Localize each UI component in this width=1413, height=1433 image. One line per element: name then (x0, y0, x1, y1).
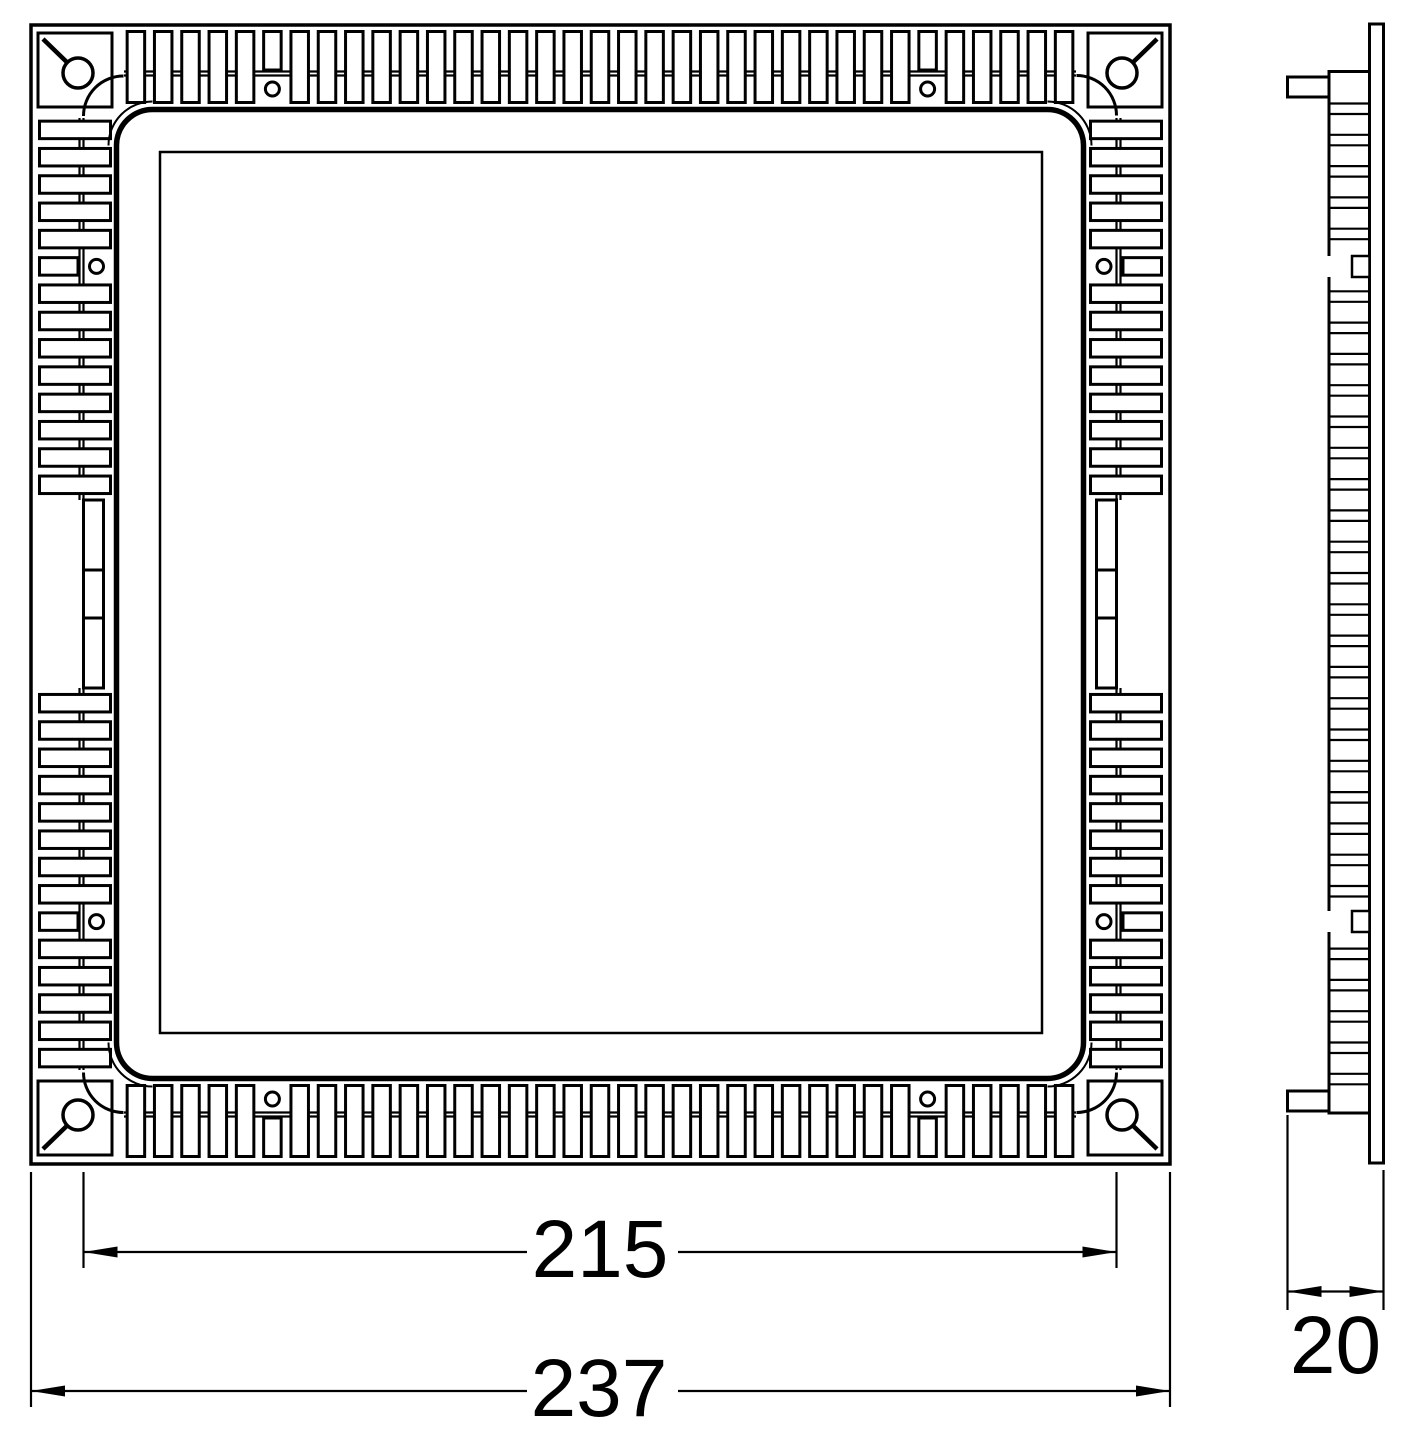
fin (1091, 340, 1162, 358)
fin (40, 749, 111, 767)
fin (673, 1086, 691, 1157)
fin (1091, 1022, 1162, 1040)
fin (40, 340, 111, 358)
fin (40, 858, 111, 876)
fin (837, 1086, 855, 1157)
fin (400, 1086, 418, 1157)
notch-clear (1326, 256, 1353, 277)
fin (564, 32, 582, 103)
fin (509, 1086, 526, 1157)
arrowhead (1350, 1286, 1384, 1297)
fin (755, 1086, 773, 1157)
fin (127, 1086, 144, 1157)
fin (482, 1086, 500, 1157)
fin (619, 1086, 637, 1157)
fin (700, 32, 718, 103)
fin (182, 1086, 200, 1157)
dimension-215: 215 (84, 1172, 1117, 1295)
arrowhead (84, 1247, 118, 1258)
fin (591, 32, 609, 103)
fin (946, 32, 964, 103)
edge-clip (84, 500, 104, 688)
dimension-215-label: 215 (532, 1204, 669, 1295)
side-view (1288, 24, 1384, 1163)
fin (591, 1086, 609, 1157)
fin (40, 476, 111, 494)
fin (1091, 176, 1162, 194)
fin (427, 32, 445, 103)
fin (1091, 121, 1162, 138)
fin (40, 449, 111, 467)
fin (864, 32, 882, 103)
fin (1091, 312, 1162, 330)
fin (1091, 776, 1162, 794)
fin (346, 32, 364, 103)
pivot-circle (63, 1100, 93, 1130)
light-aperture-square (160, 152, 1042, 1033)
screw-hole (921, 1092, 935, 1106)
top-clip-tab (1288, 77, 1330, 97)
arrowhead (1083, 1247, 1117, 1258)
screw-hole (1097, 915, 1111, 929)
fin (728, 32, 746, 103)
fin (127, 32, 144, 103)
fin (1055, 1086, 1073, 1157)
fin (40, 312, 111, 330)
fin (373, 1086, 391, 1157)
arrowhead (31, 1386, 65, 1397)
fin (1091, 886, 1162, 904)
fin (1091, 694, 1162, 712)
fin (40, 394, 111, 412)
screw-hole (90, 915, 104, 929)
fin (318, 1086, 336, 1157)
technical-drawing: 215 237 20 (0, 0, 1413, 1433)
fin (40, 804, 111, 822)
fin (1091, 749, 1162, 767)
fin (40, 967, 111, 985)
fin (318, 32, 336, 103)
arrowhead (1288, 1286, 1322, 1297)
fin (40, 148, 111, 166)
fin (1028, 32, 1046, 103)
fin (40, 1049, 111, 1067)
fin (1091, 421, 1162, 439)
fin (646, 32, 664, 103)
fin (537, 32, 555, 103)
screw-hole (90, 259, 104, 273)
flange-plate (1370, 24, 1384, 1163)
fin (236, 32, 254, 103)
fin (892, 1086, 910, 1157)
screw-hole (265, 1092, 279, 1106)
fin (1091, 394, 1162, 412)
fin (810, 32, 828, 103)
pivot-circle (1107, 1100, 1137, 1130)
fin (40, 285, 111, 303)
notch-clear (1326, 911, 1353, 932)
fin (40, 176, 111, 194)
arrowhead (1136, 1386, 1170, 1397)
fin (40, 230, 111, 248)
fin (1091, 148, 1162, 166)
screw-hole (921, 82, 935, 96)
fin (455, 32, 473, 103)
fin (1091, 858, 1162, 876)
fin (1091, 804, 1162, 822)
fin (346, 1086, 364, 1157)
fin (1001, 1086, 1019, 1157)
fin (40, 694, 111, 712)
fin (182, 32, 200, 103)
fin (40, 995, 111, 1013)
fin (40, 421, 111, 439)
fin (919, 1118, 937, 1157)
fin (40, 722, 111, 740)
fin (509, 32, 526, 103)
screw-hole (1097, 259, 1111, 273)
fin (837, 32, 855, 103)
fin (1028, 1086, 1046, 1157)
fin (864, 1086, 882, 1157)
dimension-237-label: 237 (531, 1343, 668, 1433)
fin (1091, 476, 1162, 494)
pivot-circle (63, 58, 93, 88)
fin (40, 831, 111, 849)
fin (1091, 940, 1162, 958)
fin (40, 913, 79, 931)
fin (1001, 32, 1019, 103)
fin (40, 1022, 111, 1040)
pivot-circle (1107, 58, 1137, 88)
fin (1091, 203, 1162, 221)
fin (1091, 995, 1162, 1013)
fin (700, 1086, 718, 1157)
fin (892, 32, 910, 103)
dimension-20-label: 20 (1290, 1300, 1381, 1391)
edge-clip (1097, 500, 1117, 688)
fin (619, 32, 637, 103)
fin (1091, 230, 1162, 248)
fin (40, 258, 79, 276)
fin (1091, 449, 1162, 467)
fin (782, 1086, 800, 1157)
fin (264, 32, 282, 71)
fin (646, 1086, 664, 1157)
fin (40, 121, 111, 138)
drawing-canvas: 215 237 20 (0, 0, 1413, 1433)
fin (264, 1118, 282, 1157)
fin (1123, 258, 1162, 276)
fin (482, 32, 500, 103)
fin (1091, 1049, 1162, 1067)
fin (236, 1086, 254, 1157)
fin (291, 32, 309, 103)
fin (1055, 32, 1073, 103)
fin (154, 32, 172, 103)
fin (154, 1086, 172, 1157)
notch-box (1352, 256, 1370, 277)
bottom-clip-tab (1288, 1091, 1330, 1111)
fin (1091, 285, 1162, 303)
fin (564, 1086, 582, 1157)
fin (1091, 722, 1162, 740)
fin (1091, 831, 1162, 849)
fin (291, 1086, 309, 1157)
fin (946, 1086, 964, 1157)
fin (1123, 913, 1162, 931)
fin (455, 1086, 473, 1157)
fin (40, 886, 111, 904)
fin (373, 32, 391, 103)
fin (400, 32, 418, 103)
fin (973, 32, 991, 103)
screw-hole (265, 82, 279, 96)
fin (40, 776, 111, 794)
fin (673, 32, 691, 103)
fin (40, 940, 111, 958)
fin (919, 32, 937, 71)
fin (973, 1086, 991, 1157)
front-view (31, 25, 1170, 1164)
fin (40, 367, 111, 385)
notch-box (1352, 911, 1370, 932)
fin (755, 32, 773, 103)
fin (728, 1086, 746, 1157)
fin (1091, 367, 1162, 385)
fin (209, 1086, 227, 1157)
fin (537, 1086, 555, 1157)
fin (209, 32, 227, 103)
fin (782, 32, 800, 103)
fin (40, 203, 111, 221)
fin (427, 1086, 445, 1157)
fin (810, 1086, 828, 1157)
fin (1091, 967, 1162, 985)
